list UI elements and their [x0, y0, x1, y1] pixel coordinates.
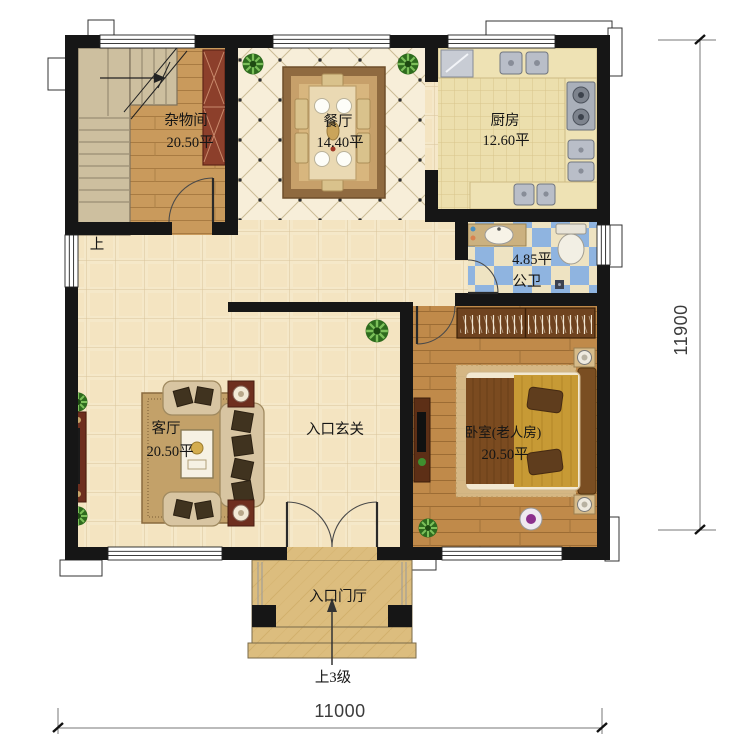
- window-dining-top: [273, 35, 390, 48]
- dimension-width-value: 11000: [314, 701, 365, 721]
- hall-name: 入口玄关: [306, 421, 364, 438]
- tv-screen: [417, 412, 426, 452]
- kitchen-name: 厨房: [491, 112, 520, 129]
- wardrobe: [457, 308, 595, 338]
- storage-name: 杂物间: [164, 112, 208, 129]
- dining-area: 14.40平: [316, 135, 363, 151]
- headboard: [578, 368, 596, 494]
- bedroom-name: 卧室(老人房): [465, 424, 542, 440]
- living-name: 客厅: [152, 420, 181, 437]
- ottoman: [520, 508, 542, 530]
- wall-kitchen-bottom: [438, 209, 597, 222]
- dimension-bottom: 11000: [53, 701, 607, 734]
- loveseat-top: [163, 381, 221, 415]
- plant-bedroom: [419, 519, 438, 538]
- kitchen-sink-bottom: [514, 184, 555, 205]
- loveseat-bottom: [163, 492, 221, 526]
- wall-storage-bottom-left: [65, 222, 172, 235]
- pillow: [527, 449, 564, 476]
- dining-chair: [295, 133, 308, 163]
- sofa-main: [220, 403, 264, 507]
- window-bedroom-bottom: [442, 547, 562, 560]
- entry-porch: [248, 547, 416, 665]
- entry-door-opening: [287, 547, 377, 560]
- floor-plan-page: 杂物间 20.50平 餐厅 14.40平 厨房 12.60平 4.85平 公卫 …: [0, 0, 750, 744]
- window-bathroom-right: [597, 225, 610, 265]
- porch-name: 入口门厅: [309, 588, 367, 605]
- plant-dining-right: [398, 54, 419, 75]
- dining-set: [283, 67, 385, 198]
- window-kitchen-top: [448, 35, 555, 48]
- storage-area: 20.50平: [166, 135, 213, 151]
- wall-left: [65, 35, 78, 560]
- side-table-top: [228, 381, 254, 407]
- entry-steps-label: 上3级: [315, 669, 351, 686]
- living-area: 20.50平: [146, 444, 193, 460]
- kitchen-area: 12.60平: [482, 133, 529, 149]
- wall-hall-partition: [228, 302, 407, 312]
- toilet: [556, 224, 586, 264]
- dining-chair: [295, 99, 308, 129]
- bathroom-name: 公卫: [513, 274, 542, 290]
- bedroom-desk: [414, 398, 430, 482]
- wall-dining-kitchen-top: [425, 48, 438, 82]
- stove: [567, 82, 595, 130]
- porch-pillar-left: [252, 605, 276, 627]
- plant-dining-left: [243, 54, 264, 75]
- bathroom-area: 4.85平: [512, 252, 552, 268]
- nightstand-top: [574, 348, 595, 367]
- wall-right: [597, 35, 610, 560]
- side-table-bottom: [228, 500, 254, 526]
- pillow: [527, 387, 564, 414]
- plant-hall: [366, 320, 389, 343]
- wall-bathroom-bottom: [455, 293, 597, 306]
- bedroom-area: 20.50平: [481, 447, 528, 463]
- dining-chair: [357, 99, 370, 129]
- nightstand-bottom: [574, 495, 595, 514]
- dimension-right: 11900: [658, 35, 716, 534]
- porch-pillar-right: [388, 605, 412, 627]
- wall-bathroom-left: [455, 222, 468, 260]
- stair-up-label: 上: [90, 236, 105, 253]
- dining-chair: [322, 74, 343, 87]
- wall-storage-bottom-right: [212, 222, 238, 235]
- dining-name: 餐厅: [324, 113, 353, 130]
- dimension-height-value: 11900: [671, 304, 691, 355]
- window-living-bottom: [108, 547, 222, 560]
- floor-plan-canvas: 杂物间 20.50平 餐厅 14.40平 厨房 12.60平 4.85平 公卫 …: [0, 0, 750, 744]
- window-left: [65, 235, 78, 287]
- window-storage-top: [100, 35, 195, 48]
- wall-storage-dining: [225, 48, 238, 235]
- wall-dining-kitchen-bottom: [425, 170, 438, 222]
- wall-hall-bedroom: [400, 302, 413, 547]
